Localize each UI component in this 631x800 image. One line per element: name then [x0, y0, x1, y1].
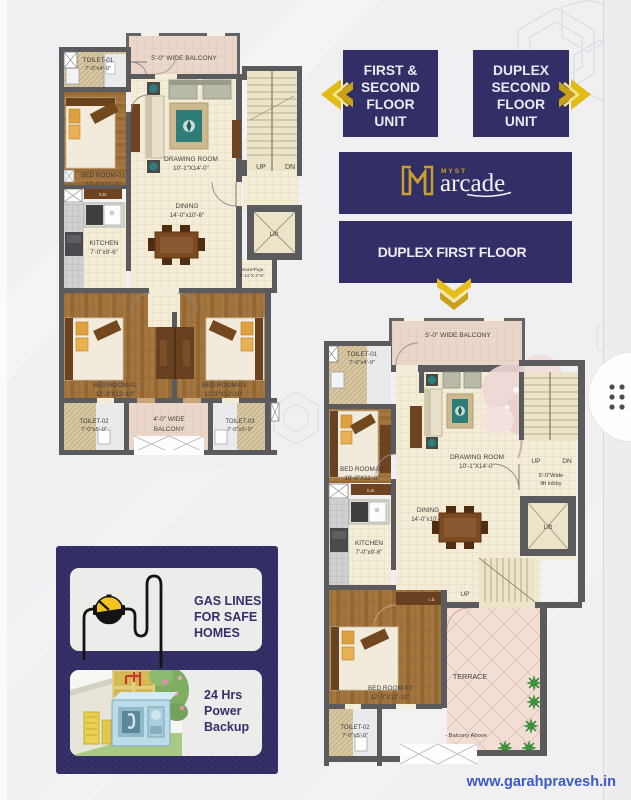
svg-text:BED ROOM-01: BED ROOM-01	[81, 172, 125, 179]
svg-text:5'-0" WIDE BALCONY: 5'-0" WIDE BALCONY	[425, 332, 491, 339]
svg-text:UNIT: UNIT	[374, 114, 407, 129]
svg-text:FIRST &: FIRST &	[364, 63, 418, 78]
svg-text:DUPLEX: DUPLEX	[493, 63, 550, 78]
svg-text:7'-0"x9'-6": 7'-0"x9'-6"	[90, 249, 118, 256]
svg-text:S.B.: S.B.	[367, 488, 376, 493]
svg-text:Lift: Lift	[544, 524, 553, 531]
svg-text:TOILET-02: TOILET-02	[79, 419, 109, 425]
svg-text:7'-0"x5'-0": 7'-0"x5'-0"	[81, 427, 107, 433]
svg-text:www.garahpravesh.in: www.garahpravesh.in	[466, 774, 616, 790]
svg-text:HOMES: HOMES	[194, 626, 240, 640]
svg-text:Lift: Lift	[270, 231, 279, 238]
svg-text:BED ROOM-01: BED ROOM-01	[340, 466, 384, 473]
svg-text:10'-1"X14'-0": 10'-1"X14'-0"	[459, 463, 495, 470]
svg-text:10'-1"X14'-0": 10'-1"X14'-0"	[173, 165, 209, 172]
svg-text:12'-3"X12'-10": 12'-3"X12'-10"	[95, 391, 134, 398]
svg-text:7'-0"x5'-0": 7'-0"x5'-0"	[227, 427, 253, 433]
svg-text:TOILET-01: TOILET-01	[347, 351, 378, 358]
svg-text:UP: UP	[256, 164, 266, 171]
svg-text:UNIT: UNIT	[505, 114, 538, 129]
svg-text:DRAWING ROOM: DRAWING ROOM	[450, 454, 504, 461]
svg-text:FLOOR: FLOOR	[497, 97, 545, 112]
svg-text:KITCHEN: KITCHEN	[355, 540, 383, 547]
svg-text:7'-0"x5'-0": 7'-0"x5'-0"	[342, 733, 368, 739]
svg-text:12'-3"X12'-10": 12'-3"X12'-10"	[370, 694, 409, 701]
svg-text:FOR SAFE: FOR SAFE	[194, 610, 257, 624]
svg-text:SECOND: SECOND	[491, 80, 550, 95]
svg-text:TERRACE: TERRACE	[453, 672, 488, 681]
svg-text:BED ROOM-03: BED ROOM-03	[202, 382, 246, 389]
svg-text:BED ROOM-02: BED ROOM-02	[368, 685, 412, 692]
svg-text:2'-11"X 3'-5": 2'-11"X 3'-5"	[240, 273, 265, 278]
svg-text:10'-0"X11'-0": 10'-0"X11'-0"	[344, 475, 379, 482]
svg-text:DRAWING ROOM: DRAWING ROOM	[164, 156, 218, 163]
svg-text:TOILET-03: TOILET-03	[225, 419, 255, 425]
svg-text:DUPLEX FIRST FLOOR: DUPLEX FIRST FLOOR	[378, 244, 527, 260]
svg-text:7'-0"x4'-9": 7'-0"x4'-9"	[85, 66, 111, 72]
svg-text:DINING: DINING	[417, 507, 439, 514]
svg-text:5'-0"Wide: 5'-0"Wide	[539, 473, 564, 479]
svg-text:UP: UP	[460, 591, 470, 598]
svg-text:- Balcony Above: - Balcony Above	[445, 733, 487, 739]
svg-text:c.b.: c.b.	[428, 597, 435, 602]
svg-text:DN: DN	[285, 164, 295, 171]
svg-text:arcade: arcade	[440, 170, 505, 197]
svg-text:TOILET-02: TOILET-02	[340, 725, 370, 731]
svg-text:BED ROOM-02: BED ROOM-02	[93, 382, 137, 389]
svg-text:24 Hrs: 24 Hrs	[204, 688, 242, 702]
svg-text:11'-3"X12'-10": 11'-3"X12'-10"	[205, 391, 244, 398]
svg-text:SECOND: SECOND	[361, 80, 420, 95]
svg-text:Backup: Backup	[204, 720, 250, 734]
svg-text:BALCONY: BALCONY	[154, 426, 185, 433]
svg-text:KITCHEN: KITCHEN	[90, 240, 119, 247]
svg-text:TOILET-01: TOILET-01	[83, 57, 114, 64]
svg-text:lift lobby: lift lobby	[540, 481, 561, 487]
svg-text:14'-0"x10'-6": 14'-0"x10'-6"	[170, 212, 205, 219]
svg-text:7'-0"x9'-6": 7'-0"x9'-6"	[356, 550, 383, 556]
svg-text:Power: Power	[204, 704, 242, 718]
svg-text:4'-0" WIDE: 4'-0" WIDE	[153, 416, 184, 423]
svg-text:GAS LINES: GAS LINES	[194, 594, 261, 608]
svg-text:S.B.: S.B.	[99, 192, 108, 197]
svg-text:FLOOR: FLOOR	[366, 97, 414, 112]
svg-text:5'-0" WIDE BALCONY: 5'-0" WIDE BALCONY	[151, 55, 217, 62]
svg-text:UP: UP	[531, 458, 541, 465]
svg-text:DINING: DINING	[175, 203, 198, 210]
svg-text:7'-0"x4'-9": 7'-0"x4'-9"	[349, 360, 375, 366]
svg-text:DN: DN	[562, 458, 572, 465]
